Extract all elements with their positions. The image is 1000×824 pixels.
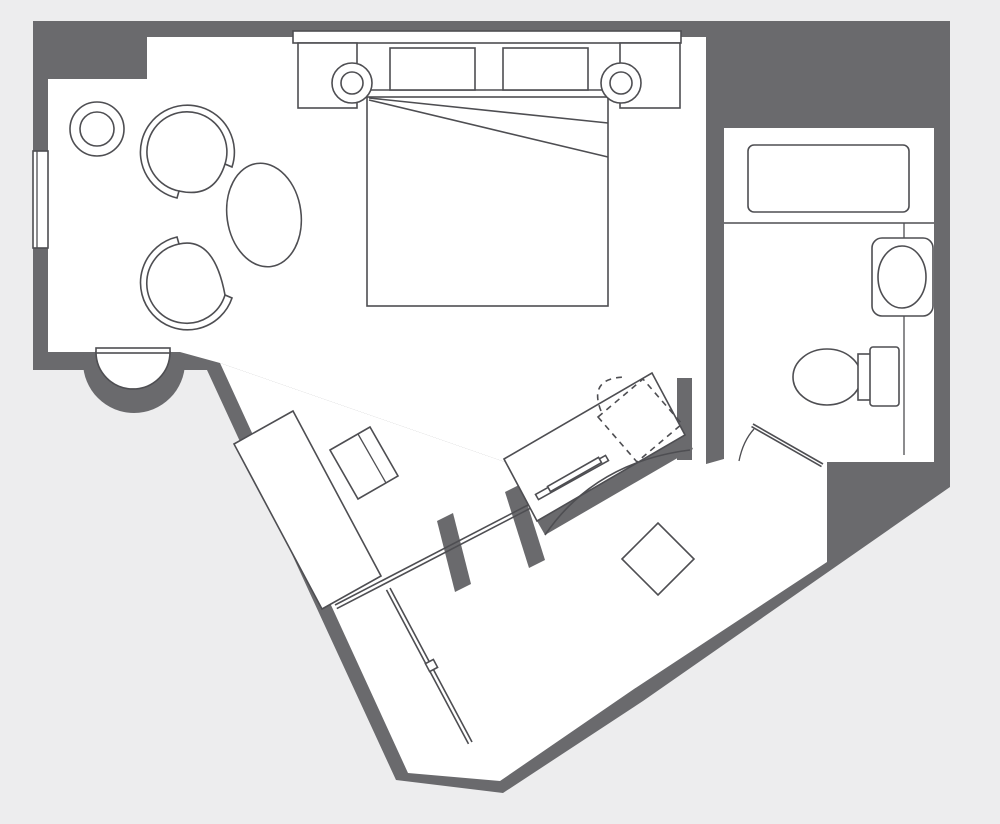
floor-plan-drawing — [0, 0, 1000, 824]
side-table — [70, 102, 124, 156]
headboard — [293, 31, 681, 43]
bay-threshold — [96, 348, 170, 353]
toilet-tank — [870, 347, 899, 406]
toilet-bowl — [793, 349, 861, 405]
window — [33, 151, 48, 248]
pillow-left — [390, 48, 475, 90]
pillow-right — [503, 48, 588, 90]
lamp-right — [601, 63, 641, 103]
floor-plan-page — [0, 0, 1000, 824]
sink — [878, 246, 926, 308]
wall-stub-nook — [677, 378, 692, 460]
lamp-left — [332, 63, 372, 103]
bathtub — [748, 145, 909, 212]
